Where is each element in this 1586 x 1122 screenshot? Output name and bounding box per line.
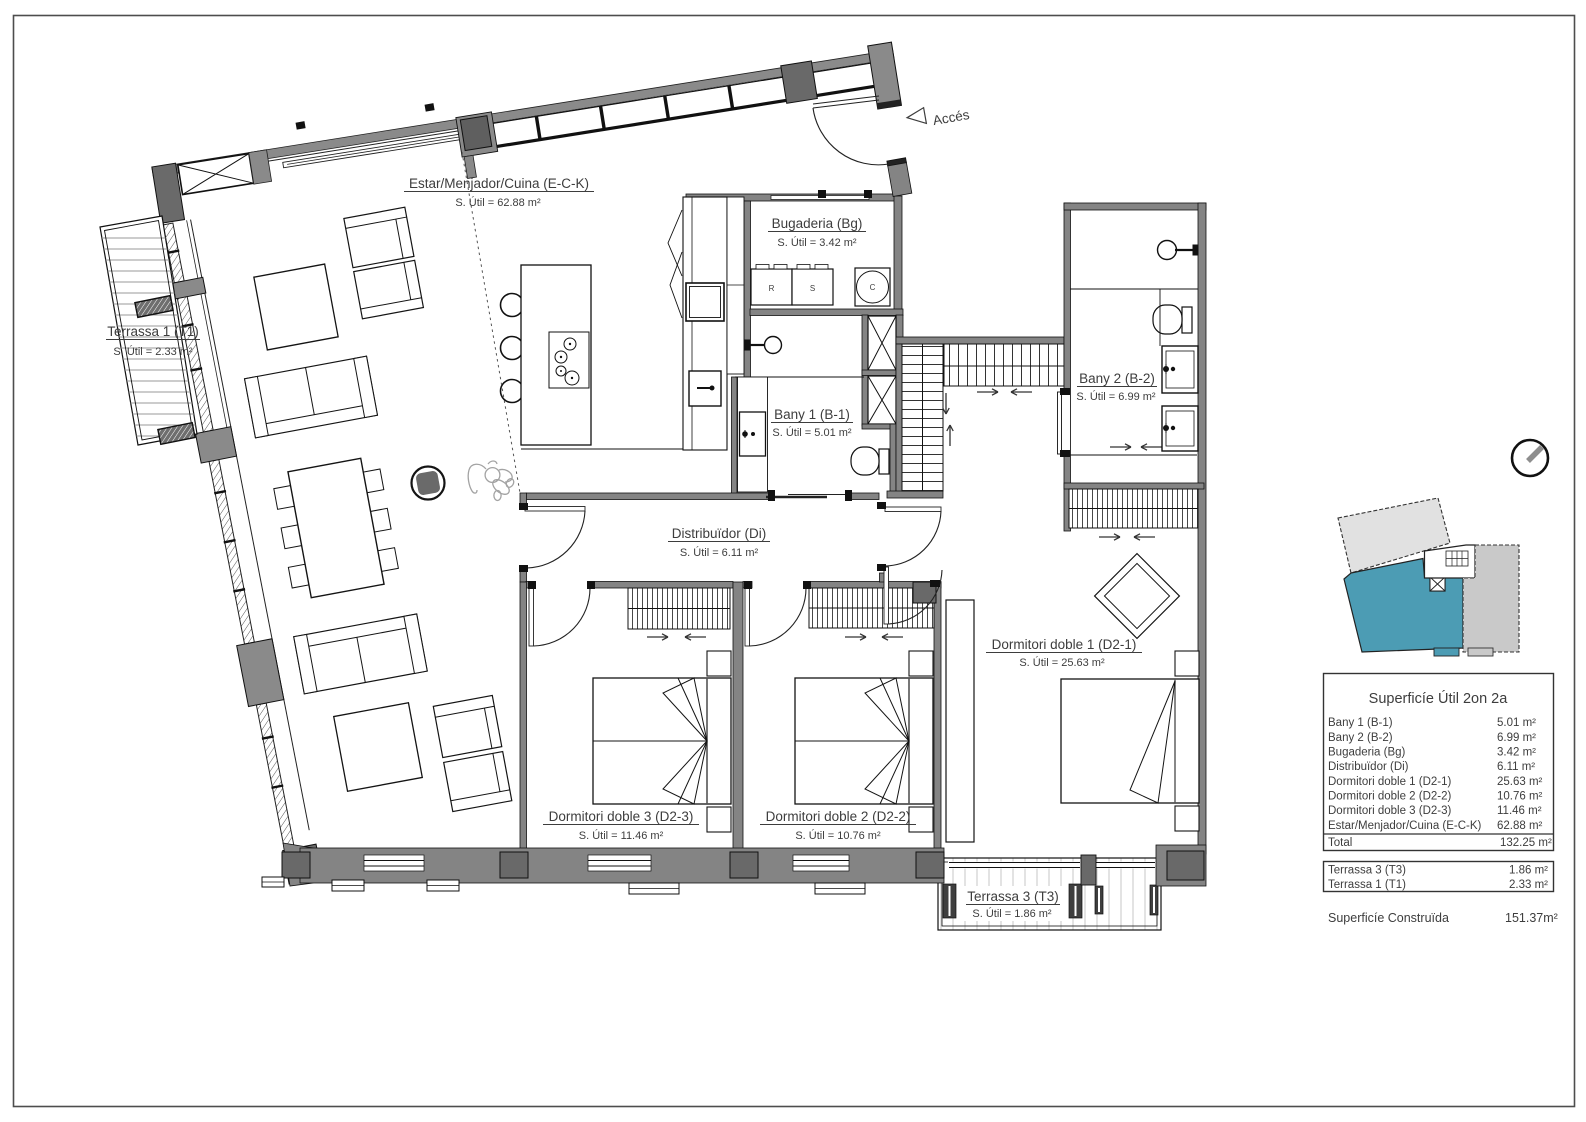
svg-text:S. Útil = 2.33 m²: S. Útil = 2.33 m²: [113, 345, 193, 358]
svg-text:S. Útil = 10.76 m²: S. Útil = 10.76 m²: [795, 829, 881, 842]
svg-text:5.01 m²: 5.01 m²: [1497, 717, 1536, 729]
svg-text:10.76 m²: 10.76 m²: [1497, 791, 1543, 803]
svg-text:Dormitori doble 1 (D2-1): Dormitori doble 1 (D2-1): [992, 637, 1137, 652]
svg-text:3.42 m²: 3.42 m²: [1497, 747, 1536, 759]
svg-text:Superficíe Útil 2on 2a: Superficíe Útil 2on 2a: [1369, 690, 1509, 707]
svg-text:S. Útil = 6.11 m²: S. Útil = 6.11 m²: [680, 546, 759, 559]
svg-text:Total: Total: [1328, 837, 1352, 849]
svg-text:Terrassa 1 (T1): Terrassa 1 (T1): [107, 324, 199, 339]
svg-text:C: C: [870, 283, 876, 292]
svg-text:Bugaderia (Bg): Bugaderia (Bg): [772, 216, 863, 231]
svg-text:Bugaderia (Bg): Bugaderia (Bg): [1328, 747, 1406, 759]
svg-text:Dormitori doble 3 (D2-3): Dormitori doble 3 (D2-3): [549, 809, 694, 824]
svg-text:S. Útil = 25.63 m²: S. Útil = 25.63 m²: [1019, 656, 1105, 669]
svg-text:Superficíe Construïda: Superficíe Construïda: [1328, 911, 1449, 925]
svg-text:151.37m²: 151.37m²: [1505, 911, 1558, 925]
svg-text:S. Útil = 3.42 m²: S. Útil = 3.42 m²: [777, 236, 857, 249]
svg-text:Estar/Menjador/Cuina (E-C-K): Estar/Menjador/Cuina (E-C-K): [1328, 820, 1482, 832]
svg-text:Dormitori doble 3 (D2-3): Dormitori doble 3 (D2-3): [1328, 805, 1452, 817]
svg-text:Dormitori doble 1 (D2-1): Dormitori doble 1 (D2-1): [1328, 776, 1452, 788]
svg-text:2.33 m²: 2.33 m²: [1509, 879, 1548, 891]
svg-text:S. Útil = 6.99 m²: S. Útil = 6.99 m²: [1076, 390, 1156, 403]
svg-text:S: S: [810, 284, 815, 293]
svg-text:6.11 m²: 6.11 m²: [1497, 761, 1535, 773]
svg-text:Distribuïdor (Di): Distribuïdor (Di): [1328, 761, 1409, 773]
svg-text:Dormitori doble 2 (D2-2): Dormitori doble 2 (D2-2): [1328, 791, 1452, 803]
svg-text:S. Útil = 5.01 m²: S. Útil = 5.01 m²: [772, 426, 852, 439]
svg-text:Bany 1 (B-1): Bany 1 (B-1): [1328, 717, 1393, 729]
svg-text:S. Útil = 1.86 m²: S. Útil = 1.86 m²: [972, 907, 1052, 920]
svg-text:132.25 m²: 132.25 m²: [1500, 837, 1552, 849]
svg-text:S. Útil = 11.46 m²: S. Útil = 11.46 m²: [579, 829, 664, 842]
svg-text:Accés: Accés: [932, 107, 971, 128]
svg-text:25.63 m²: 25.63 m²: [1497, 776, 1543, 788]
svg-text:Bany 1 (B-1): Bany 1 (B-1): [774, 407, 850, 422]
svg-text:11.46 m²: 11.46 m²: [1497, 805, 1542, 817]
svg-text:Estar/Menjador/Cuina (E-C-K): Estar/Menjador/Cuina (E-C-K): [409, 176, 589, 191]
svg-text:S. Útil = 62.88 m²: S. Útil = 62.88 m²: [455, 196, 541, 209]
svg-text:6.99 m²: 6.99 m²: [1497, 732, 1536, 744]
svg-text:Terrassa 3 (T3): Terrassa 3 (T3): [967, 889, 1059, 904]
svg-text:1.86 m²: 1.86 m²: [1509, 865, 1548, 877]
svg-text:Dormitori doble 2 (D2-2): Dormitori doble 2 (D2-2): [766, 809, 911, 824]
svg-text:Terrassa 1 (T1): Terrassa 1 (T1): [1328, 879, 1406, 891]
svg-text:Bany 2 (B-2): Bany 2 (B-2): [1328, 732, 1393, 744]
svg-text:Bany 2 (B-2): Bany 2 (B-2): [1079, 371, 1155, 386]
svg-text:Terrassa 3 (T3): Terrassa 3 (T3): [1328, 865, 1406, 877]
svg-text:R: R: [769, 284, 775, 293]
svg-text:Distribuïdor (Di): Distribuïdor (Di): [672, 526, 767, 541]
svg-text:62.88 m²: 62.88 m²: [1497, 820, 1543, 832]
